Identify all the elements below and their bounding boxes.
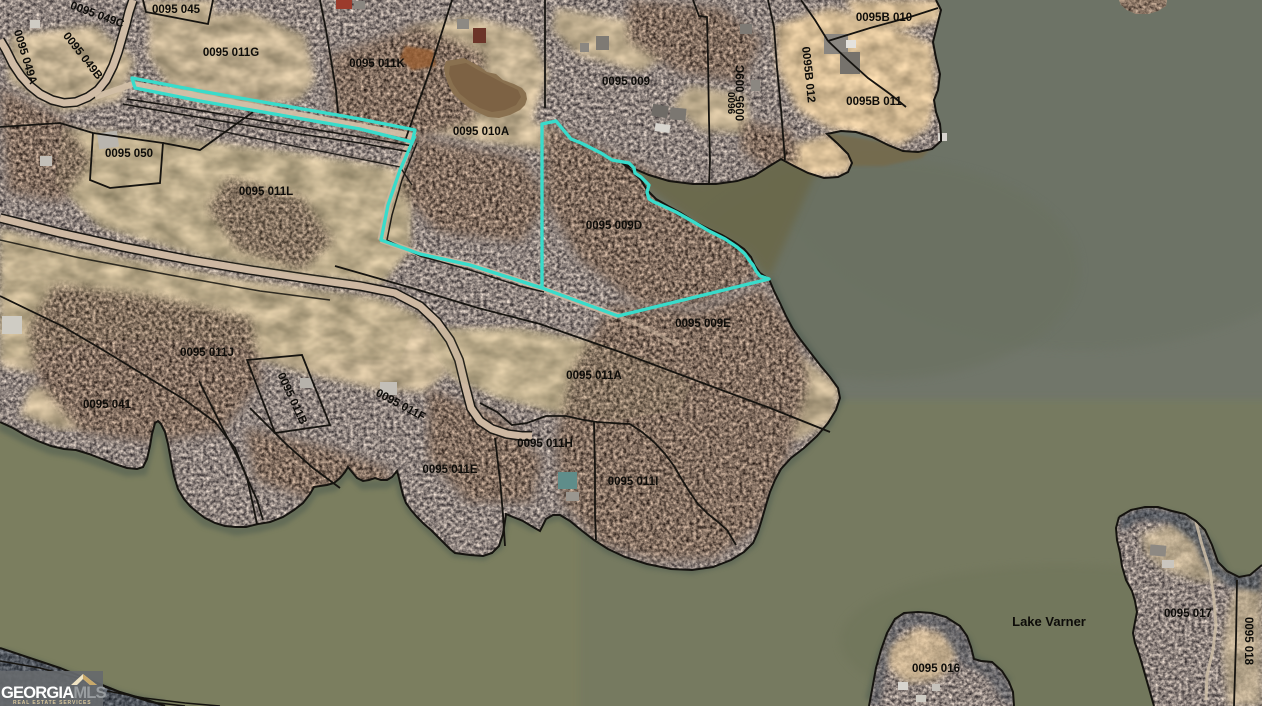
svg-text:0095 011K: 0095 011K [349,58,405,70]
svg-text:0095B 010: 0095B 010 [856,12,912,24]
svg-text:0095 011E: 0095 011E [422,464,477,476]
svg-text:0095 050: 0095 050 [105,148,153,160]
svg-text:Lake Varner: Lake Varner [1012,614,1086,629]
svg-text:0095 011G: 0095 011G [203,47,259,59]
svg-text:REAL ESTATE SERVICES: REAL ESTATE SERVICES [13,700,91,706]
svg-text:0095 045: 0095 045 [152,4,201,16]
svg-text:0095 018: 0095 018 [1242,617,1254,666]
svg-text:0095 009E: 0095 009E [675,318,731,330]
svg-text:0095 011L: 0095 011L [239,186,293,198]
svg-text:0095B 011: 0095B 011 [846,96,902,108]
svg-text:0095 009D: 0095 009D [586,220,642,232]
svg-text:0095 011I: 0095 011I [608,476,659,488]
svg-text:0095 017: 0095 017 [1164,608,1212,620]
svg-text:0095 041: 0095 041 [83,399,132,411]
svg-text:0095 011A: 0095 011A [566,370,622,382]
svg-text:9600: 9600 [727,91,738,114]
svg-text:0095 016: 0095 016 [912,663,960,675]
svg-text:0095 009: 0095 009 [602,76,650,88]
svg-text:0095 011H: 0095 011H [517,438,573,450]
svg-text:0095 011J: 0095 011J [180,347,234,359]
svg-text:0095 010A: 0095 010A [453,126,509,138]
